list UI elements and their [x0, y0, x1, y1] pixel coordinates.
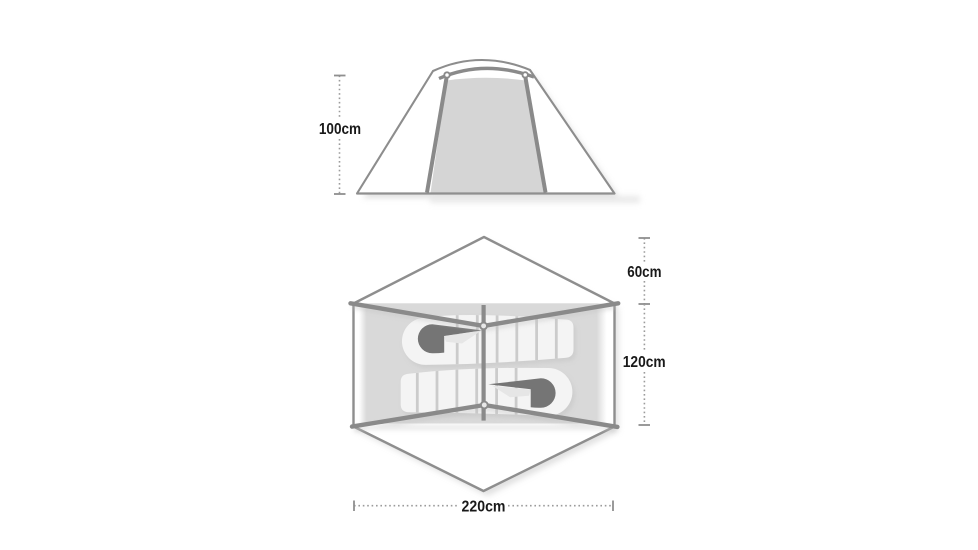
svg-text:120cm: 120cm [623, 354, 666, 371]
svg-text:60cm: 60cm [627, 264, 661, 281]
svg-text:100cm: 100cm [319, 121, 361, 138]
svg-text:220cm: 220cm [462, 499, 506, 516]
